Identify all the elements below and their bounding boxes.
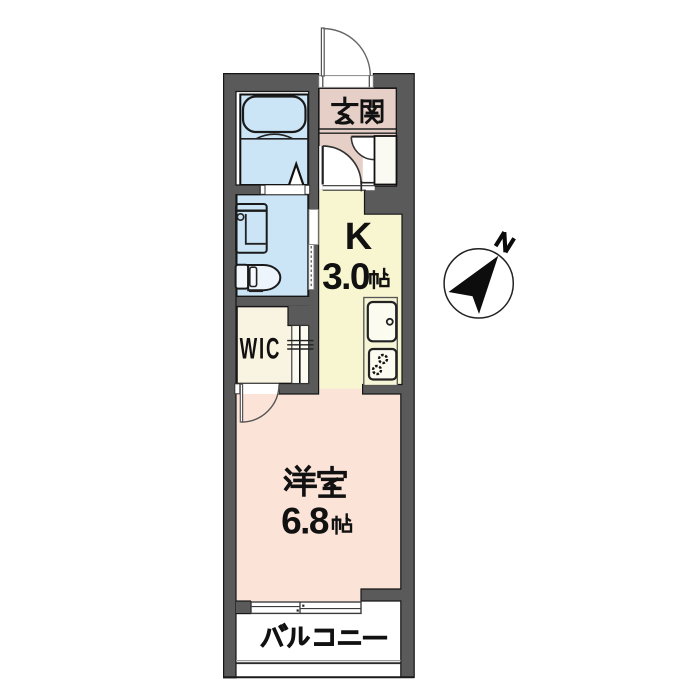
svg-text:6.8: 6.8 bbox=[281, 501, 329, 542]
svg-text:WIC: WIC bbox=[240, 332, 282, 366]
svg-text:K: K bbox=[345, 216, 373, 258]
svg-text:3.0: 3.0 bbox=[322, 256, 370, 297]
